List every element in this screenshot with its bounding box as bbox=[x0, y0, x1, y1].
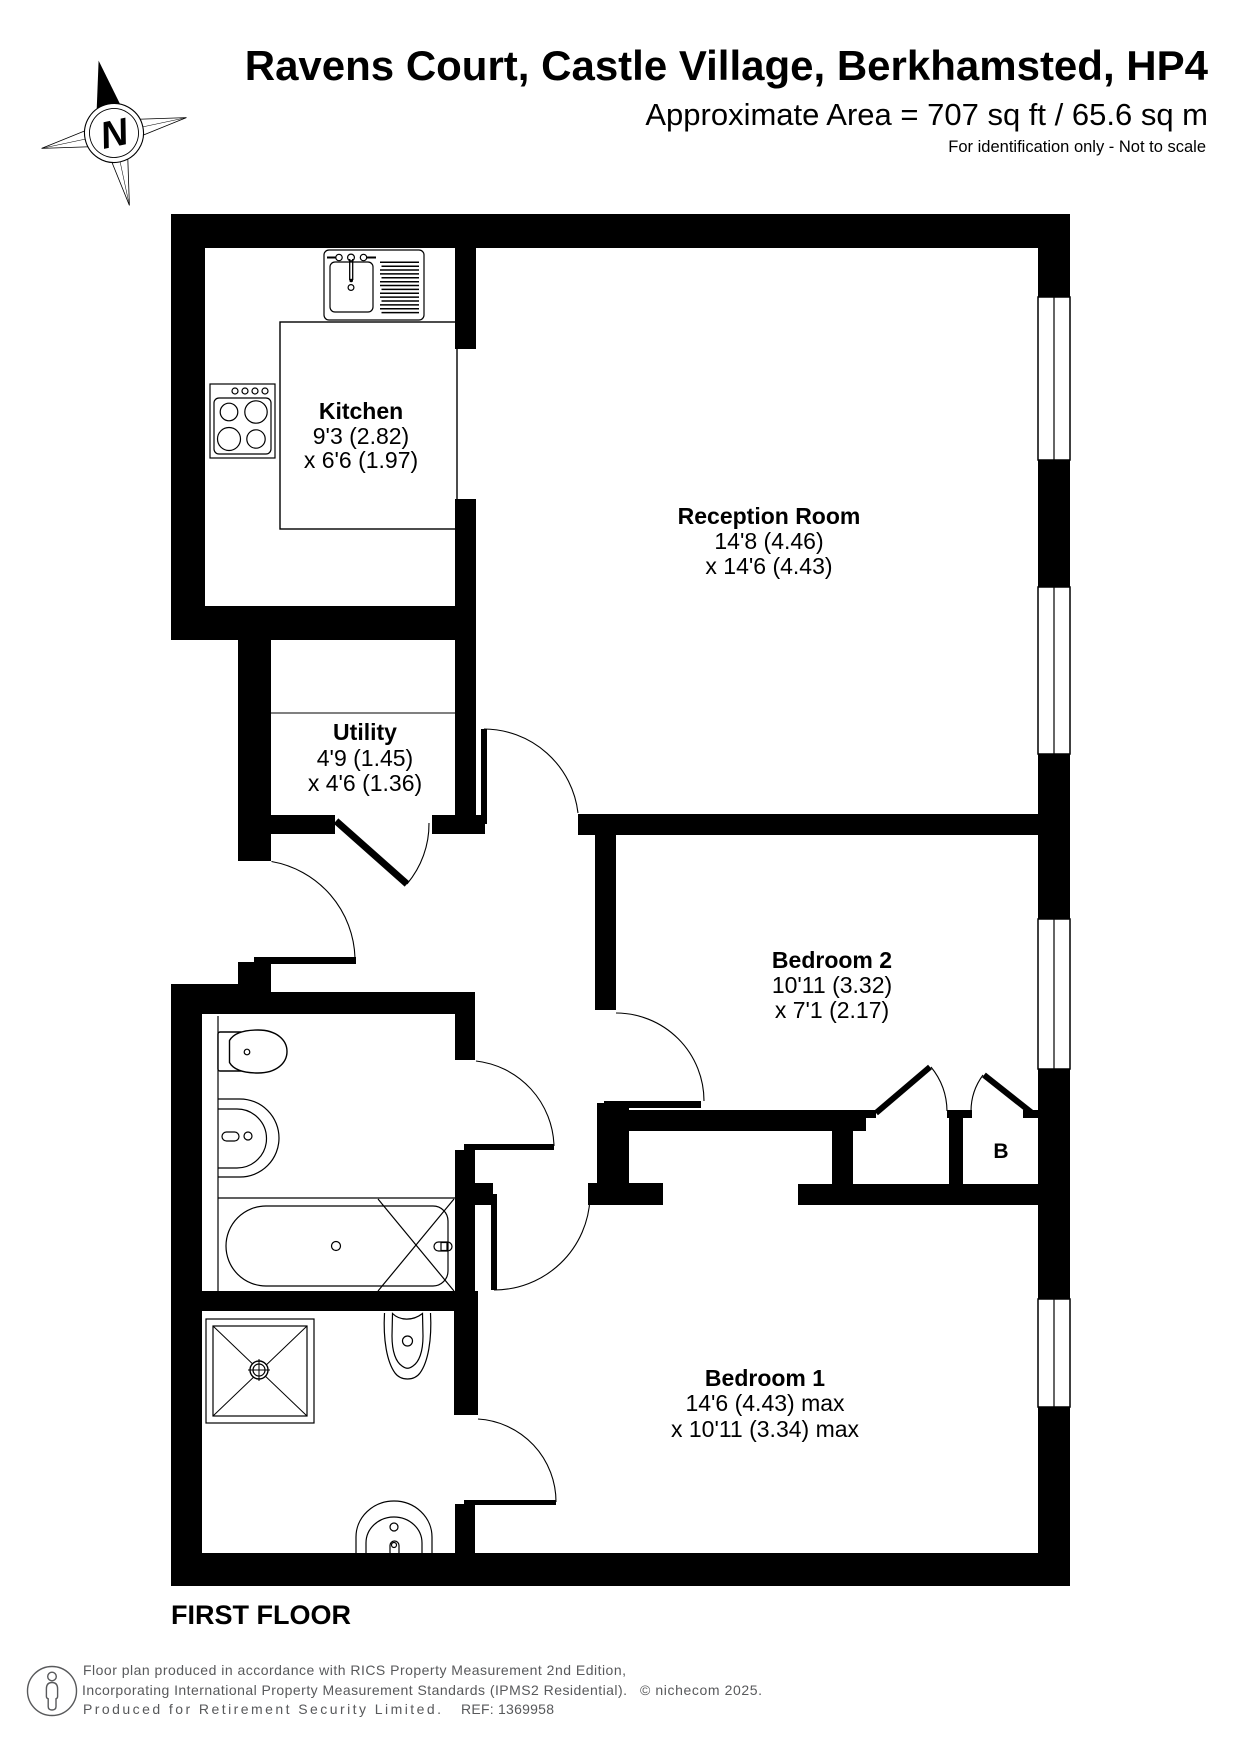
svg-text:14'6 (4.43) max: 14'6 (4.43) max bbox=[685, 1390, 845, 1416]
svg-text:For identification only - Not: For identification only - Not to scale bbox=[948, 138, 1206, 156]
svg-text:9'3 (2.82): 9'3 (2.82) bbox=[313, 423, 409, 449]
svg-text:FIRST FLOOR: FIRST FLOOR bbox=[171, 1600, 351, 1630]
svg-text:Approximate Area = 707 sq ft /: Approximate Area = 707 sq ft / 65.6 sq m bbox=[645, 97, 1208, 132]
svg-text:© nichecom 2025.: © nichecom 2025. bbox=[640, 1682, 762, 1698]
svg-text:x 10'11 (3.34) max: x 10'11 (3.34) max bbox=[671, 1416, 860, 1442]
svg-text:Produced for Retirement Securi: Produced for Retirement Security Limited… bbox=[83, 1701, 441, 1717]
svg-text:Utility: Utility bbox=[333, 719, 397, 745]
svg-text:Kitchen: Kitchen bbox=[319, 398, 403, 424]
svg-text:REF: 1369958: REF: 1369958 bbox=[461, 1701, 554, 1717]
svg-text:Bedroom 1: Bedroom 1 bbox=[705, 1365, 825, 1391]
svg-text:x 14'6 (4.43): x 14'6 (4.43) bbox=[705, 553, 832, 579]
svg-text:Ravens Court, Castle Village,: Ravens Court, Castle Village, Berkhamste… bbox=[245, 42, 1209, 89]
svg-text:B: B bbox=[993, 1140, 1008, 1163]
svg-text:x 6'6 (1.97): x 6'6 (1.97) bbox=[304, 447, 418, 473]
svg-text:10'11 (3.32): 10'11 (3.32) bbox=[772, 972, 892, 998]
svg-text:Floor plan produced in accorda: Floor plan produced in accordance with R… bbox=[83, 1662, 626, 1678]
svg-text:14'8 (4.46): 14'8 (4.46) bbox=[714, 528, 823, 554]
svg-text:Bedroom 2: Bedroom 2 bbox=[772, 947, 892, 973]
svg-text:Incorporating International Pr: Incorporating International Property Mea… bbox=[82, 1682, 627, 1698]
svg-text:4'9 (1.45): 4'9 (1.45) bbox=[317, 745, 413, 771]
svg-text:Reception Room: Reception Room bbox=[678, 503, 861, 529]
svg-text:x 4'6 (1.36): x 4'6 (1.36) bbox=[308, 770, 422, 796]
svg-text:x 7'1 (2.17): x 7'1 (2.17) bbox=[775, 997, 889, 1023]
